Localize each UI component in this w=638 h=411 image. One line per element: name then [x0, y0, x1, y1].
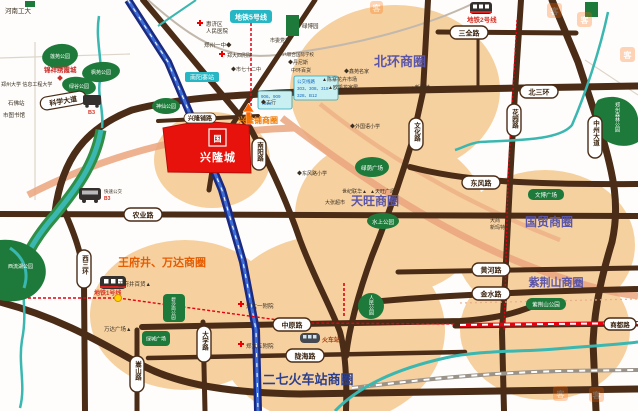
svg-text:兴隆铺路: 兴隆铺路	[188, 115, 213, 123]
park-lvyin-label: 绿荫广场	[361, 164, 384, 172]
poi-xinmate: ▲新玛特	[410, 84, 430, 91]
road-label-shangdu: 商都路	[604, 318, 636, 330]
svg-text:客: 客	[623, 50, 633, 60]
road-label-huayuan: 花园路	[507, 104, 521, 136]
label-tianwang: 天旺商圈	[351, 193, 399, 208]
poi-lianhua: 世纪联华▲	[342, 188, 367, 195]
poi-huiji2: 人民医院	[206, 27, 229, 35]
project-name: 兴隆城	[200, 150, 236, 164]
poi-gonghang: ◆工行	[261, 99, 276, 106]
poi-dongfengxx: ◆东风路小学	[297, 170, 327, 177]
park-zijinshan-label: 紫荆山公园	[532, 301, 560, 309]
poi-dashang1: 大商	[490, 217, 500, 224]
road-label-huanghe: 黄河路	[472, 263, 510, 276]
svg-text:中原路: 中原路	[282, 321, 304, 330]
svg-text:客: 客	[592, 390, 602, 400]
poi-wanda: 万达广场▲	[104, 325, 131, 333]
road-label-zhongzhou: 中州大道	[588, 116, 602, 158]
metro-train-icon	[470, 2, 492, 14]
poi-oukailong: ▲欧凯龙家居	[328, 84, 358, 91]
poi-qierzhong: ◆市七十二中	[231, 66, 261, 73]
park-rect-topleft	[25, 1, 35, 7]
svg-text:东风路: 东风路	[471, 179, 493, 188]
park-xiliuhu-label: 西流湖公园	[8, 263, 33, 270]
svg-text:906、909: 906、909	[261, 94, 281, 99]
svg-text:金水路: 金水路	[480, 290, 503, 299]
svg-text:黄河路: 黄河路	[481, 266, 503, 275]
poi-zhonghuan: 中环百货	[291, 67, 311, 74]
road-label-nongye: 农业路	[124, 208, 162, 221]
road-label-xisanhuan: 西三环	[77, 250, 91, 288]
poi-shifo: 石佛站	[8, 99, 25, 107]
svg-text:北三环: 北三环	[529, 88, 550, 97]
svg-text:客: 客	[372, 3, 382, 13]
park-lvbo-label: 绿博园	[302, 22, 319, 30]
park-wenbo-label: 文博广场	[535, 191, 558, 199]
label-erqi: 二七火车站商圈	[262, 372, 353, 387]
poi-dashang2: 新玛特	[490, 224, 505, 231]
svg-text:地铁5号线: 地铁5号线	[235, 13, 267, 22]
road-label-beisanhuan: 北三环	[520, 85, 558, 98]
poi-xinxi: 郑州大学 信息工程大学	[1, 81, 52, 88]
brt-b3-label: B3	[104, 196, 111, 202]
location-map[interactable]: 莲苑公园 枫苑公园 绿谷公园 神仙公园 绿博园 绿荫广场 水上公园 人民公园 郑…	[0, 0, 638, 411]
metro-line2-label: 地铁2号线	[467, 15, 497, 24]
metro-station-dot	[115, 295, 122, 302]
svg-text:南阳寨站: 南阳寨站	[190, 74, 214, 82]
train-icon	[300, 333, 320, 343]
poi-yiba: 一八联合国际学校	[278, 51, 314, 58]
park-shuishang-label: 水上公园	[372, 218, 395, 226]
svg-text:农业路: 农业路	[132, 211, 155, 220]
label-xinglongpu: 兴隆铺商圈	[238, 115, 278, 125]
road-label-songshan: 嵩山路	[130, 356, 144, 392]
park-shenxian-label: 神仙公园	[156, 103, 176, 110]
nanyangzhai-station-badge: 南阳寨站	[185, 72, 219, 82]
brt-b3-label: B3	[88, 110, 95, 116]
park-lvbo	[286, 15, 299, 36]
label-guomao: 国贸商圈	[525, 214, 573, 229]
label-zijinshan: 紫荆山商圈	[529, 275, 584, 289]
poi-huiji1: 惠济区	[206, 20, 223, 28]
poi-tushuguan: 市图书馆	[3, 111, 26, 119]
poi-sifuyuan: 郑大四附院	[227, 52, 252, 59]
poi-wufuyuan: 郑大五附院	[246, 342, 274, 350]
project-logo-glyph: 国	[214, 134, 222, 144]
project-parcel: 国 兴隆城	[163, 121, 251, 173]
poi-gongda: 河南工大	[5, 6, 32, 15]
watermark-badge: 客	[553, 386, 568, 401]
road-label-daxue: 大学路	[197, 326, 211, 362]
park-renmin-label: 人民公园	[368, 295, 374, 316]
park-lvgu-label: 绿谷公园	[69, 83, 89, 90]
road-label-nanyang: 南阳路	[252, 138, 266, 170]
label-beihuan: 北环商圈	[374, 54, 426, 69]
railway-station-label2: 火车站	[322, 336, 340, 344]
poi-dannisi: ◆丹尼斯	[288, 59, 308, 66]
metro-line5-badge: 地铁5号线	[230, 10, 272, 23]
watermark-badge: 客	[589, 387, 604, 402]
road-label-jinshui: 金水路	[472, 287, 510, 300]
poi-waiguoyu: ◆外国语小学	[350, 123, 380, 130]
svg-text:公交线路: 公交线路	[297, 78, 315, 85]
watermark-badge: 客	[547, 3, 562, 18]
park-bishagang-label: 碧沙岗公园	[171, 296, 177, 321]
svg-text:客: 客	[580, 15, 590, 25]
poi-yizhong: 郑州一中◆	[204, 41, 232, 49]
svg-text:328、B12: 328、B12	[297, 93, 318, 98]
road-label-zhongyuan: 中原路	[273, 318, 311, 331]
svg-text:商都路: 商都路	[610, 320, 630, 329]
brt-label: 快速公交	[104, 188, 122, 195]
road-label-longhai: 陇海路	[286, 349, 324, 362]
poi-dazhang: 大张超市	[325, 199, 345, 206]
poi-chenzhai: ▲陈寨花卉市场	[322, 76, 357, 83]
road-label-sanquan: 三全路	[450, 26, 488, 39]
poi-tianwanggc: ▲天旺广场	[370, 188, 395, 195]
road-label-wenhua: 文化路	[409, 118, 423, 150]
park-fengyuan-label: 枫苑公园	[91, 69, 111, 76]
label-wangfujing: 王府井、万达商圈	[118, 255, 206, 269]
watermark-badge: 客	[370, 1, 383, 14]
park-lianyuan-label: 莲苑公园	[50, 53, 70, 60]
poi-jinxiang: 锦祥绣霞城	[44, 65, 77, 74]
park-senlin-label: 郑州森林公园	[614, 101, 620, 133]
svg-text:客: 客	[556, 389, 566, 399]
road-label-xinglongpu-road: 兴隆铺路	[184, 113, 216, 123]
park-lvcheng-label: 绿城广场	[146, 336, 166, 343]
watermark-badge: 客	[577, 12, 592, 27]
svg-text:303、308、318: 303、308、318	[297, 86, 329, 91]
road-label-dongfeng: 东风路	[462, 176, 500, 189]
poi-yifuyuan: 郑大一附院	[246, 302, 274, 310]
svg-text:三全路: 三全路	[459, 29, 481, 38]
poi-wfjbh: 王府井百货▲	[118, 280, 151, 288]
poi-dangxiao: 市委党校	[270, 37, 290, 44]
svg-text:客: 客	[550, 6, 560, 16]
watermark-badge: 客	[620, 47, 635, 62]
poi-xinyuan: ◆鑫苑名家	[344, 68, 369, 75]
svg-text:陇海路: 陇海路	[295, 352, 317, 361]
